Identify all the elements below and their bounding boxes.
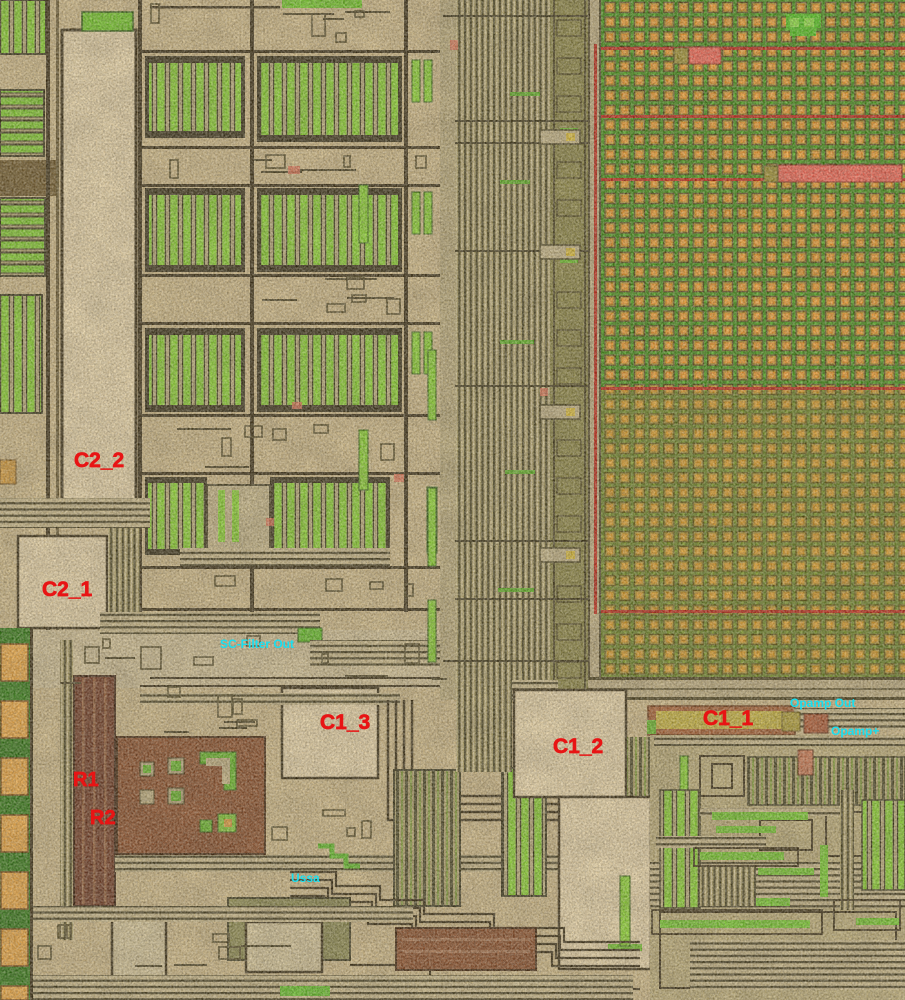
svg-text:C2_2: C2_2 xyxy=(74,449,124,472)
svg-text:C2_1: C2_1 xyxy=(42,578,93,601)
svg-text:R1: R1 xyxy=(73,769,99,791)
svg-text:Opamp+: Opamp+ xyxy=(831,724,879,738)
svg-text:SC-Filter Out: SC-Filter Out xyxy=(220,637,294,651)
svg-text:C1_3: C1_3 xyxy=(320,711,370,734)
svg-text:C1_1: C1_1 xyxy=(703,707,754,730)
svg-text:R2: R2 xyxy=(90,807,116,829)
svg-text:Opamp Out: Opamp Out xyxy=(790,696,855,710)
svg-text:C1_2: C1_2 xyxy=(553,735,603,758)
svg-text:Ussa: Ussa xyxy=(291,871,320,885)
